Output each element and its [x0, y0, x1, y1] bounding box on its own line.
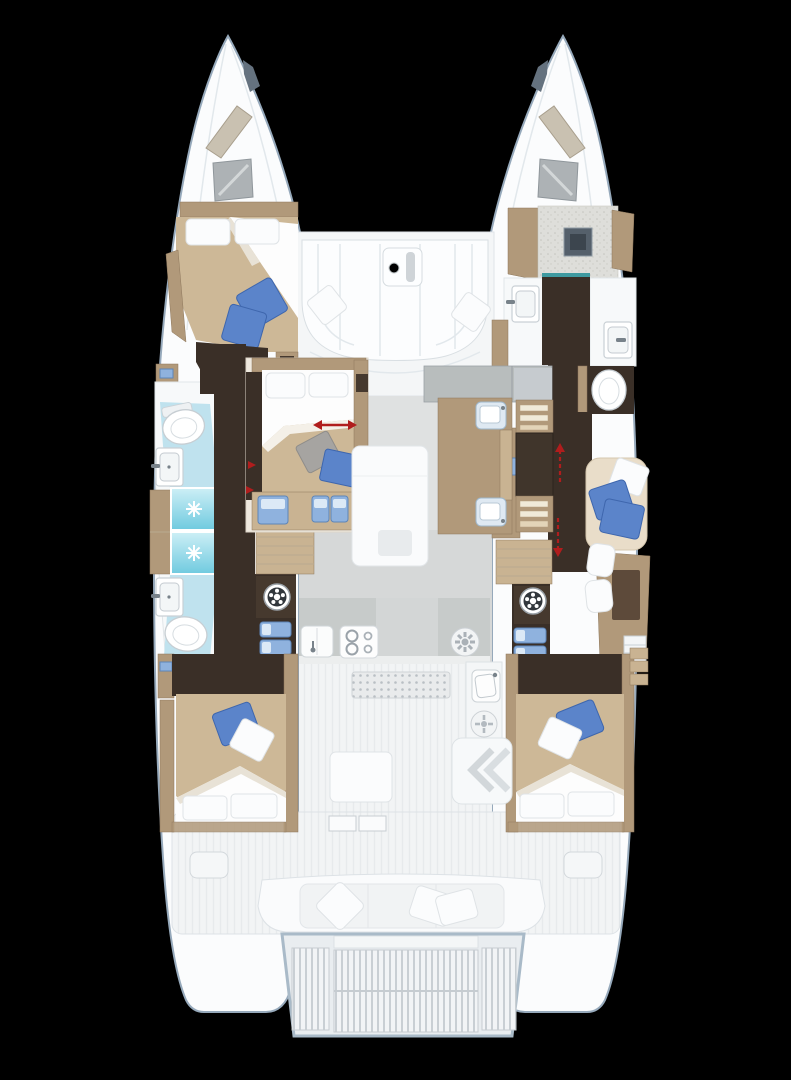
side-sink-icon	[472, 670, 500, 702]
lounge-nook	[586, 457, 650, 550]
dining-area	[516, 400, 553, 532]
headboard	[252, 358, 366, 372]
washing-machine-icon	[264, 584, 290, 610]
galley-island	[438, 398, 512, 534]
shower-drain-icon	[186, 545, 202, 561]
pillow	[309, 373, 348, 397]
engine-hatch	[564, 852, 602, 878]
bridgedeck-forward-cabin	[246, 358, 368, 532]
side-hob-icon	[471, 711, 497, 737]
teak-grating	[482, 948, 516, 1030]
dining-table	[516, 433, 553, 496]
stove-icon	[340, 626, 378, 658]
companionway-stairs	[496, 540, 552, 584]
headboard	[180, 202, 298, 217]
sink-icon	[604, 322, 632, 358]
pillow	[568, 792, 614, 816]
sink-icon	[151, 448, 183, 486]
toilet-room	[578, 366, 634, 414]
catamaran-floorplan-image: Catamaran interior deck plan, overhead v…	[0, 0, 791, 1080]
seat-cushion	[586, 542, 616, 577]
pillow	[235, 219, 279, 244]
settee-table	[352, 446, 428, 566]
starboard-aft-cabin	[506, 648, 648, 832]
shelf-boxes	[630, 648, 648, 685]
shower-cubicle	[171, 532, 216, 574]
desk-blotter	[612, 570, 640, 620]
vent-hob-icon	[451, 628, 479, 656]
port-aft-cabin	[158, 654, 298, 832]
companionway-stairs	[256, 527, 314, 574]
pillow	[231, 794, 277, 818]
sink-icon	[476, 402, 506, 429]
washing-machine-icon	[520, 588, 546, 614]
side-counter	[466, 662, 502, 742]
swim-platform	[282, 934, 524, 1036]
pillow	[183, 796, 227, 820]
step-platform	[252, 492, 354, 530]
cockpit-table	[330, 752, 392, 802]
engine-hatch	[190, 852, 228, 878]
starboard-forepeak	[508, 206, 634, 282]
pillow	[520, 794, 564, 818]
sink-icon	[151, 578, 183, 616]
grill-grate	[352, 672, 450, 698]
aft-bench	[258, 874, 545, 932]
seat-cushion	[584, 579, 613, 614]
teak-grating	[292, 948, 329, 1030]
cockpit-steps-seat	[452, 738, 512, 804]
galley-sink-icon	[301, 626, 333, 657]
floorplan-svg: Catamaran interior deck plan, overhead v…	[0, 0, 791, 1080]
shower-cubicle	[171, 488, 216, 530]
sink-icon	[476, 498, 506, 526]
pillow	[186, 219, 230, 245]
pillow	[266, 373, 305, 398]
